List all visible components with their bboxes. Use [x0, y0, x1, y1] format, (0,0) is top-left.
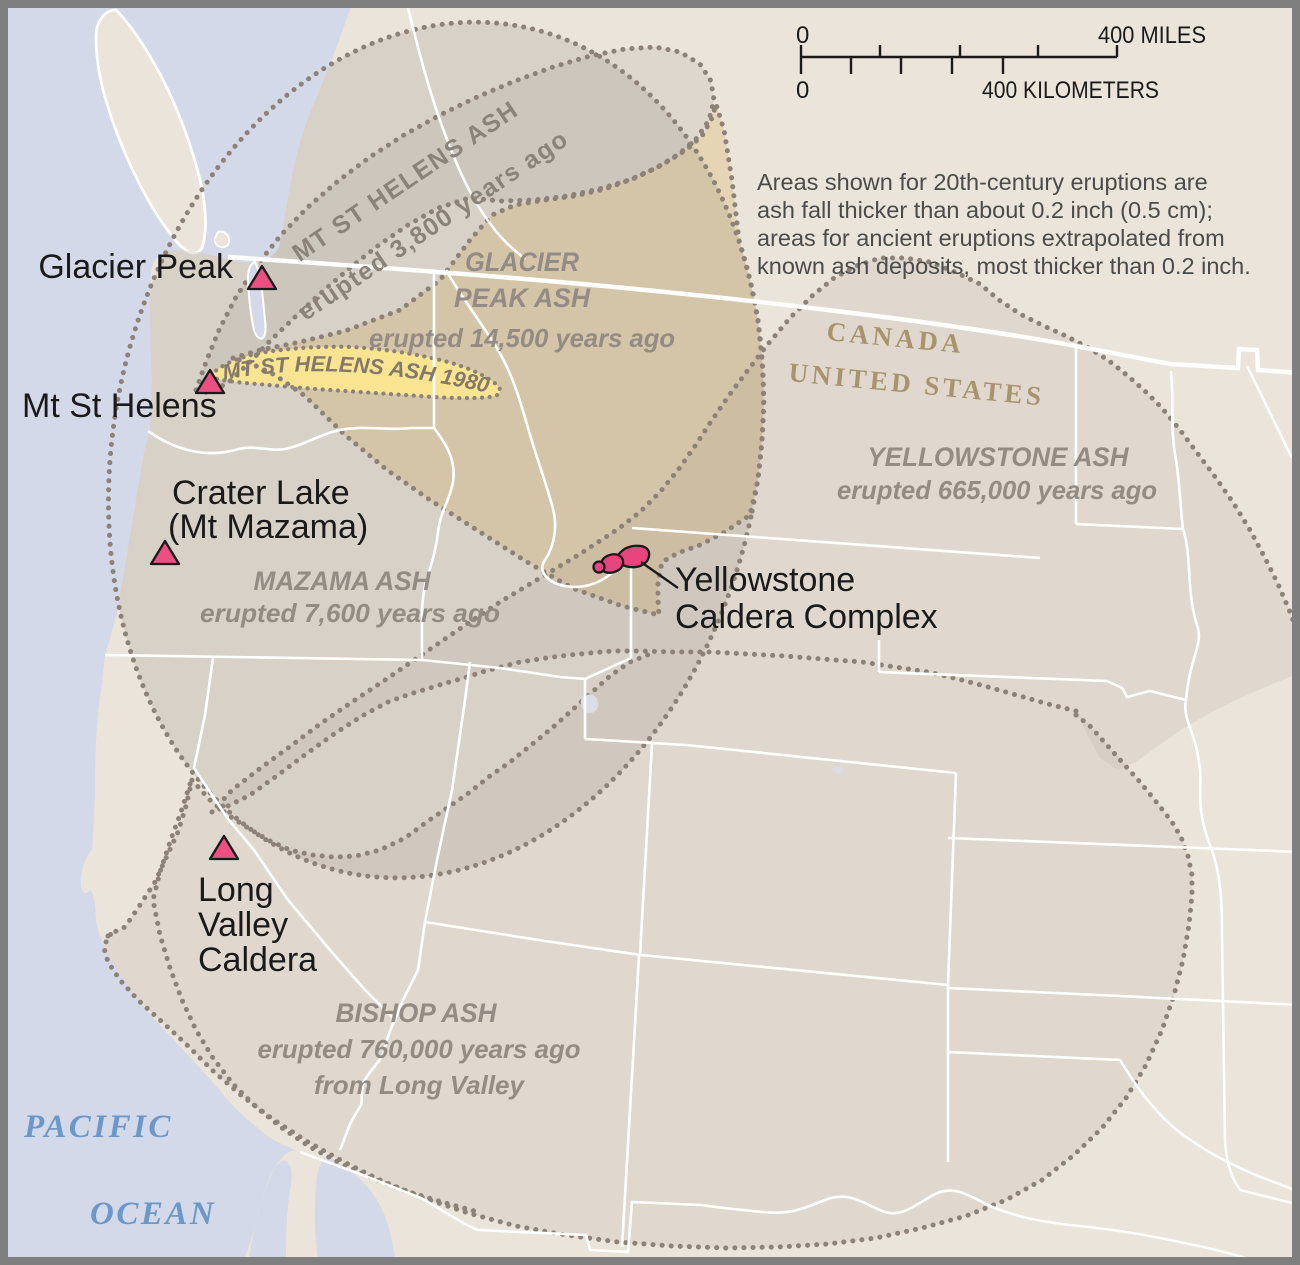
svg-text:OCEAN: OCEAN	[90, 1196, 216, 1232]
svg-text:Glacier Peak: Glacier Peak	[38, 248, 234, 286]
svg-text:Mt St Helens: Mt St Helens	[22, 387, 217, 425]
svg-text:Caldera: Caldera	[198, 941, 317, 979]
svg-text:YELLOWSTONE ASH: YELLOWSTONE ASH	[868, 442, 1129, 472]
svg-text:areas for ancient eruptions ex: areas for ancient eruptions extrapolated…	[757, 225, 1225, 251]
svg-text:400 MILES: 400 MILES	[1098, 22, 1206, 49]
svg-text:MAZAMA ASH: MAZAMA ASH	[254, 566, 431, 596]
svg-text:PEAK ASH: PEAK ASH	[454, 283, 590, 313]
svg-text:400 KILOMETERS: 400 KILOMETERS	[982, 77, 1159, 104]
svg-text:(Mt Mazama): (Mt Mazama)	[168, 508, 368, 546]
svg-text:Caldera Complex: Caldera Complex	[675, 598, 938, 636]
svg-text:BISHOP ASH: BISHOP ASH	[336, 998, 497, 1028]
svg-text:0: 0	[796, 77, 809, 104]
svg-text:Long: Long	[198, 871, 274, 909]
svg-text:Valley: Valley	[198, 906, 288, 944]
svg-text:known ash deposits, most thick: known ash deposits, most thicker than 0.…	[757, 253, 1251, 279]
svg-text:Areas shown for 20th-century e: Areas shown for 20th-century eruptions a…	[757, 169, 1208, 195]
svg-text:PACIFIC: PACIFIC	[23, 1109, 173, 1145]
svg-text:Crater Lake: Crater Lake	[172, 474, 350, 512]
svg-text:erupted 14,500 years ago: erupted 14,500 years ago	[369, 323, 675, 353]
svg-text:0: 0	[796, 22, 809, 49]
svg-text:ash fall thicker than about 0.: ash fall thicker than about 0.2 inch (0.…	[757, 197, 1213, 223]
svg-text:erupted 760,000 years ago: erupted 760,000 years ago	[258, 1034, 581, 1064]
svg-text:erupted 665,000 years ago: erupted 665,000 years ago	[837, 475, 1157, 505]
svg-text:Yellowstone: Yellowstone	[675, 561, 855, 599]
svg-text:from Long Valley: from Long Valley	[314, 1070, 526, 1100]
svg-text:GLACIER: GLACIER	[465, 247, 579, 277]
svg-text:erupted 7,600 years ago: erupted 7,600 years ago	[200, 598, 500, 628]
